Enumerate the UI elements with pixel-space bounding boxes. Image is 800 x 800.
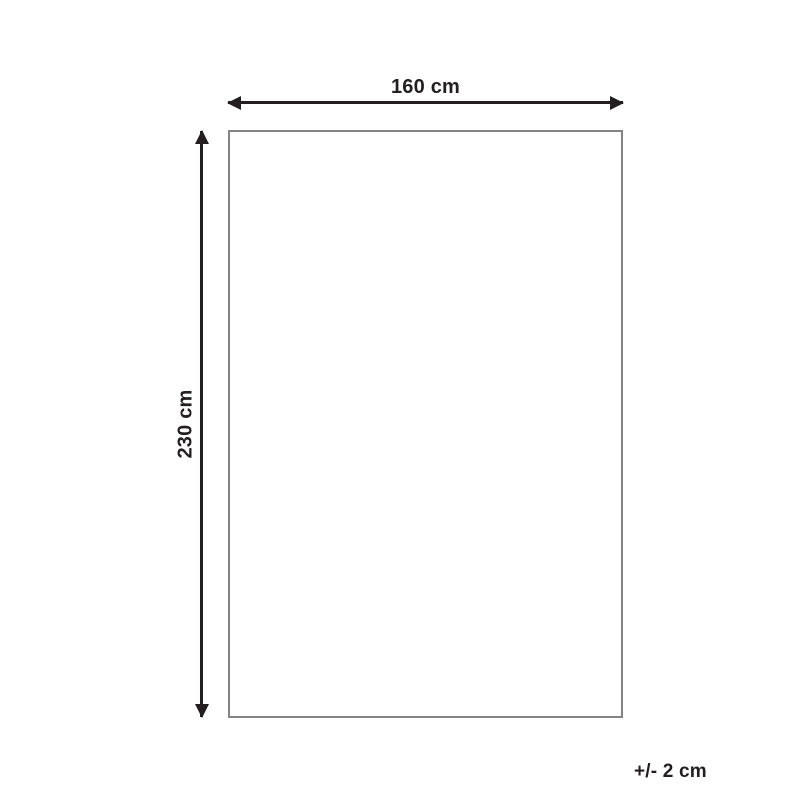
arrowhead-down-icon (195, 704, 209, 718)
height-dimension-arrow (200, 131, 203, 717)
width-dimension-label: 160 cm (228, 76, 623, 99)
product-outline-rectangle (228, 130, 623, 718)
height-dimension-label: 230 cm (175, 389, 198, 458)
width-dimension-arrow (228, 101, 623, 104)
tolerance-label: +/- 2 cm (634, 761, 707, 783)
arrowhead-up-icon (195, 130, 209, 144)
dimension-diagram: 160 cm 230 cm +/- 2 cm (0, 0, 800, 800)
